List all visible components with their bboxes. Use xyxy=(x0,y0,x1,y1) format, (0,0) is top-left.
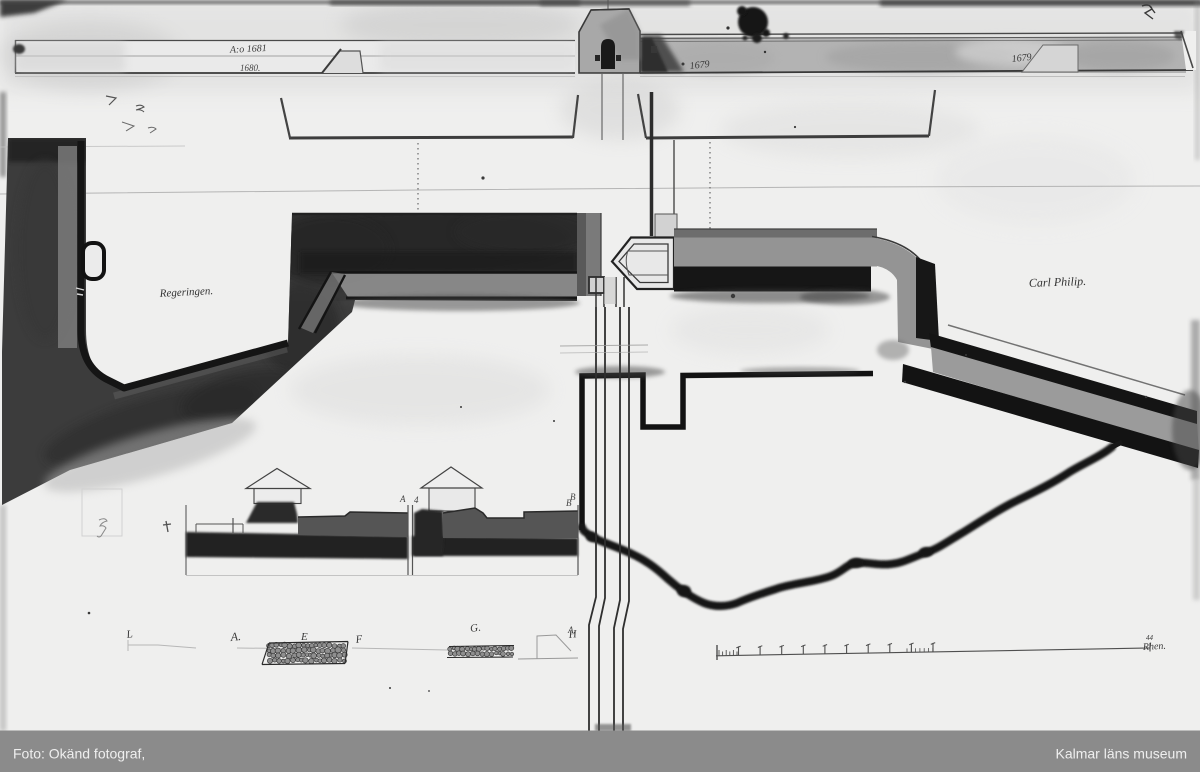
svg-text:1679: 1679 xyxy=(689,59,710,72)
svg-text:1679: 1679 xyxy=(1011,52,1032,65)
svg-text:4: 4 xyxy=(414,495,419,505)
svg-text:Foto: Okänd fotograf,: Foto: Okänd fotograf, xyxy=(13,746,145,762)
svg-text:A: A xyxy=(399,494,406,504)
svg-text:Carl Philip.: Carl Philip. xyxy=(1029,274,1087,290)
svg-text:44: 44 xyxy=(1146,634,1154,642)
svg-text:E: E xyxy=(300,631,308,643)
svg-text:B: B xyxy=(570,492,576,502)
svg-text:A:o 1681: A:o 1681 xyxy=(229,43,267,56)
svg-text:F: F xyxy=(354,633,363,646)
svg-text:A.: A. xyxy=(229,629,242,644)
svg-text:Kalmar läns museum: Kalmar läns museum xyxy=(1056,746,1188,762)
svg-text:G.: G. xyxy=(469,622,481,635)
svg-text:1680.: 1680. xyxy=(240,63,260,73)
svg-text:Rhen.: Rhen. xyxy=(1142,641,1167,653)
